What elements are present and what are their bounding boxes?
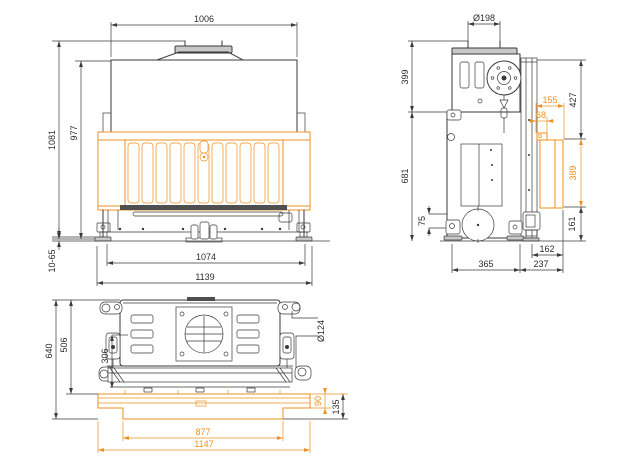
- dim-plan-opening-width: 877: [195, 427, 210, 437]
- side-view: [440, 41, 586, 243]
- dim-front-top-width: 1006: [194, 14, 214, 24]
- dim-side-rear-inset-depth: 162: [539, 244, 554, 254]
- dim-side-front-depth: 237: [533, 259, 548, 269]
- dim-side-upper-front-height: 427: [568, 92, 578, 107]
- dim-plan-frame-band-depth: 90: [313, 396, 323, 406]
- dim-side-flue-diameter: Ø198: [473, 13, 495, 23]
- plan-front-rail: [107, 366, 293, 392]
- drawing-page: 1006 1081 977 10-65 1074 1139: [0, 0, 624, 460]
- dim-leader-124-bottom: [296, 336, 318, 368]
- dim-front-base-width: 1074: [196, 252, 216, 262]
- dim-plan-overall-depth: 640: [44, 343, 54, 358]
- dim-front-frame-width: 1139: [195, 272, 214, 282]
- plan-fan-plate: [176, 307, 232, 361]
- dim-side-base-depth: 365: [478, 259, 493, 269]
- plan-back-tab: [187, 297, 215, 301]
- dim-side-lower-front-height: 161: [567, 216, 577, 231]
- front-pedestal: [95, 210, 312, 242]
- dim-side-door-depth: 155: [542, 95, 557, 105]
- side-hinge-bracket: [447, 110, 461, 120]
- dim-side-glass-height: 389: [568, 165, 578, 180]
- side-back-panel: [521, 58, 537, 238]
- front-center-bracket: [186, 222, 222, 242]
- dim-plan-latch-depth: 306: [100, 348, 110, 363]
- side-flue-collar: [452, 48, 517, 54]
- dim-plan-body-depth: 506: [59, 337, 69, 352]
- front-body: [111, 60, 297, 132]
- dim-plan-frame-overall-width: 1147: [194, 439, 213, 449]
- dim-front-leg-range: 10-65: [47, 249, 57, 272]
- side-pulley-wheel: [487, 61, 521, 95]
- technical-drawing-canvas: 1006 1081 977 10-65 1074 1139: [0, 0, 624, 460]
- dim-side-body-height: 681: [400, 168, 410, 183]
- front-frame: [98, 132, 310, 210]
- dim-side-foot-height: 75: [417, 216, 427, 226]
- dim-side-door-lip-depth: 68: [536, 110, 546, 120]
- front-left-tab: [103, 113, 111, 133]
- side-door-frame: [537, 133, 563, 208]
- side-right-foot: [507, 221, 524, 240]
- front-right-tab: [297, 113, 305, 133]
- plan-frame: [98, 390, 310, 419]
- dim-front-body-height: 977: [69, 125, 79, 140]
- dim-side-upper-height: 399: [400, 69, 410, 84]
- front-base-band: [120, 205, 287, 210]
- plan-view: [98, 297, 311, 419]
- dim-front-overall-height: 1081: [47, 130, 57, 150]
- side-door-recess: [461, 144, 502, 206]
- dim-plan-frame-depth: 135: [331, 399, 341, 414]
- front-view: [52, 41, 330, 242]
- side-left-foot: [444, 220, 462, 240]
- plan-right-latch: [280, 333, 294, 370]
- dim-plan-spigot-diameter: Ø124: [316, 320, 326, 342]
- front-door-handle: [200, 141, 208, 161]
